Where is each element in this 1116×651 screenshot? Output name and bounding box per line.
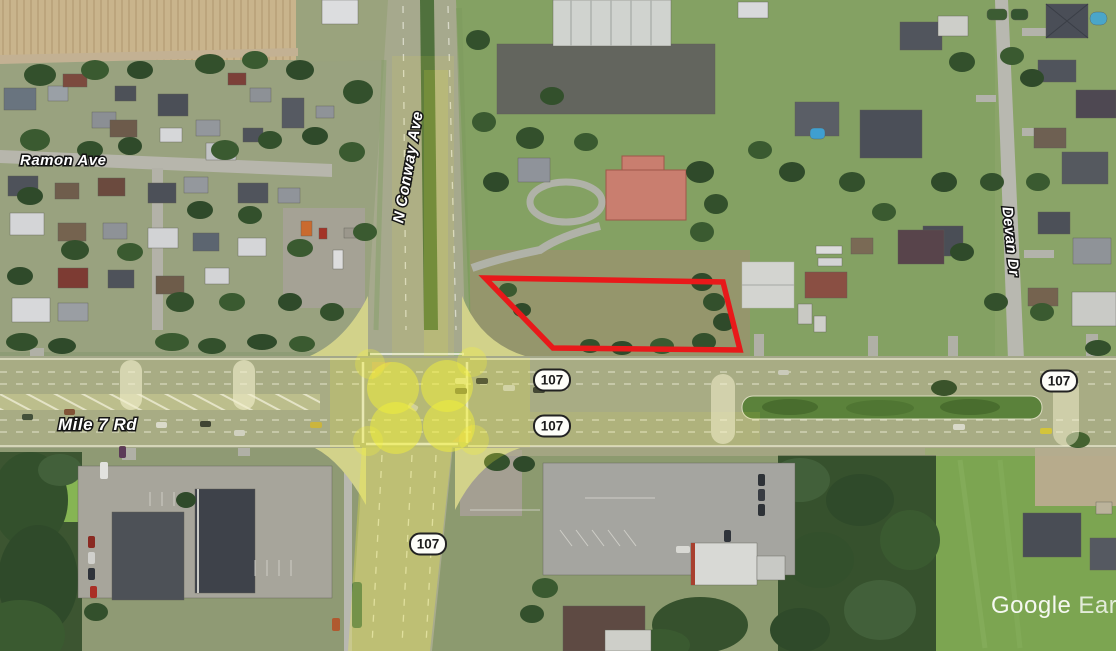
- satellite-map[interactable]: Ramon Ave Mile 7 Rd N Conway Ave Devan D…: [0, 0, 1116, 651]
- label-ramon-ave: Ramon Ave: [20, 152, 106, 169]
- svg-text:107: 107: [541, 419, 564, 434]
- google-earth-watermark: GoogleEarth: [991, 592, 1116, 619]
- route-shield-107: 107: [1041, 371, 1077, 392]
- label-mile-7-rd: Mile 7 Rd: [58, 415, 137, 434]
- svg-text:107: 107: [1048, 374, 1071, 389]
- map-viewport[interactable]: Ramon Ave Mile 7 Rd N Conway Ave Devan D…: [0, 0, 1116, 651]
- route-shield-107: 107: [534, 370, 570, 391]
- svg-text:107: 107: [541, 373, 564, 388]
- route-shield-107: 107: [410, 534, 446, 555]
- route-shield-107: 107: [534, 416, 570, 437]
- svg-text:107: 107: [417, 537, 440, 552]
